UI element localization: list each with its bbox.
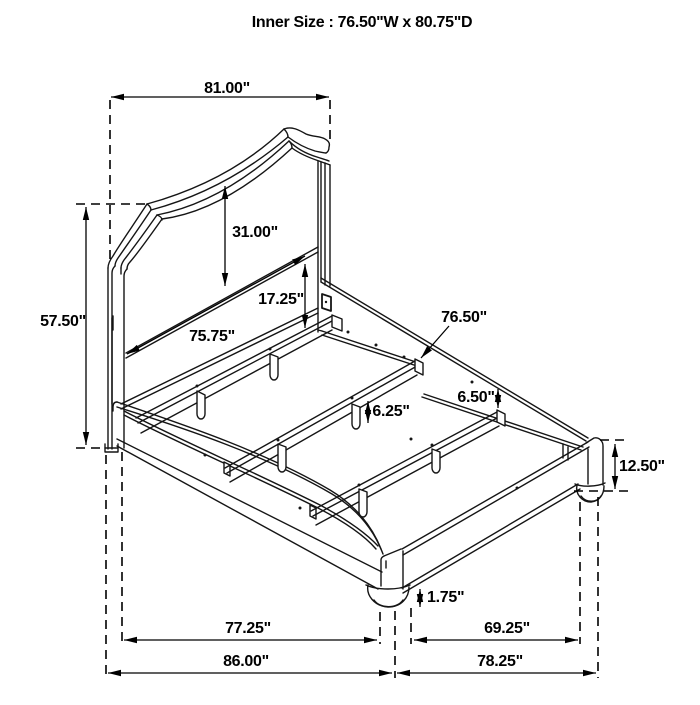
svg-text:86.00": 86.00" [223, 653, 269, 670]
svg-text:Inner Size : 76.50"W x 80.75"D: Inner Size : 76.50"W x 80.75"D [252, 14, 473, 31]
svg-text:69.25": 69.25" [484, 620, 530, 637]
svg-text:12.50": 12.50" [619, 458, 665, 475]
svg-text:6.50": 6.50" [457, 389, 494, 406]
svg-text:17.25": 17.25" [258, 291, 304, 308]
svg-text:31.00": 31.00" [232, 224, 278, 241]
svg-text:57.50": 57.50" [40, 313, 86, 330]
svg-text:76.50": 76.50" [441, 309, 487, 326]
svg-text:81.00": 81.00" [204, 80, 250, 97]
svg-text:6.25": 6.25" [372, 403, 409, 420]
svg-text:78.25": 78.25" [477, 653, 523, 670]
svg-text:77.25": 77.25" [225, 620, 271, 637]
svg-text:75.75": 75.75" [189, 328, 235, 345]
svg-text:1.75": 1.75" [427, 589, 464, 606]
